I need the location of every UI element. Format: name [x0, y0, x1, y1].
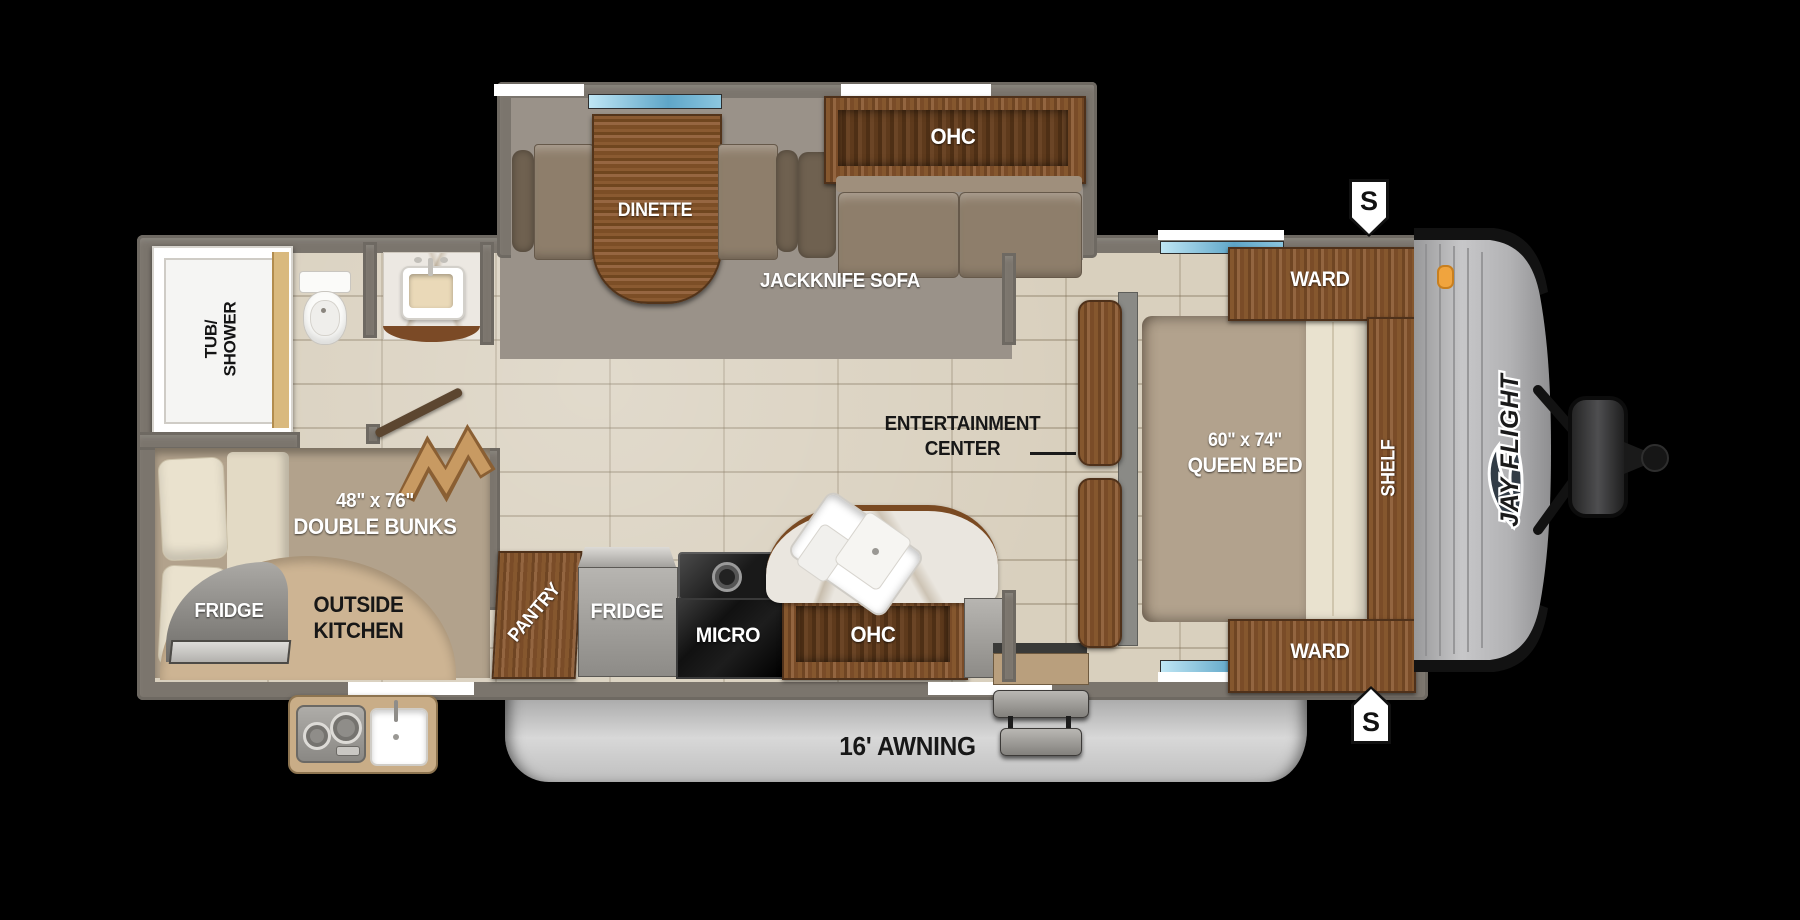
- front-cap: JAY FLIGHT: [1412, 200, 1672, 700]
- slideout-window-left: [494, 84, 584, 96]
- toilet-tank: [299, 271, 351, 293]
- outside-kitchen-line2: KITCHEN: [300, 618, 418, 644]
- entertainment-line2: CENTER: [857, 437, 1069, 462]
- bedroom-window-top-frame: [1158, 230, 1284, 240]
- entertainment-line1: ENTERTAINMENT: [857, 412, 1069, 437]
- dinette-label: DINETTE: [596, 200, 714, 222]
- dinette-window-glass: [588, 94, 722, 109]
- exterior-stove-burner-right: [330, 712, 362, 744]
- marker-light: [1438, 266, 1453, 288]
- fridge-top-bevel: [578, 547, 676, 567]
- dinette-armrest-right: [776, 150, 798, 252]
- outside-kitchen-line1: OUTSIDE: [300, 592, 418, 618]
- sofa-cushion-right: [959, 192, 1082, 278]
- awning-label: 16' AWNING: [825, 731, 990, 762]
- entry-step-2: [1000, 728, 1082, 756]
- tub-shower-line2: SHOWER: [220, 302, 239, 377]
- speaker-marker-top: S: [1349, 179, 1389, 237]
- cooktop-burner: [712, 562, 742, 592]
- shelf-label-wrap: SHELF: [1367, 317, 1412, 619]
- toilet-flush-dot: [321, 308, 326, 313]
- exterior-sink: [370, 708, 428, 766]
- sofa-cushion-left: [838, 192, 959, 278]
- entertainment-cabinet-lower: [1078, 478, 1122, 648]
- queen-bed-pillow-crease: [1332, 322, 1334, 616]
- entertainment-cabinet-upper: [1078, 300, 1122, 466]
- faucet-icon: [428, 258, 433, 276]
- double-bunks-name: DOUBLE BUNKS: [267, 514, 483, 540]
- exterior-sink-faucet: [394, 700, 398, 722]
- slideout-window-right: [841, 84, 991, 96]
- ward-top-label: WARD: [1234, 268, 1407, 292]
- double-bunks-size: 48" x 76": [267, 488, 483, 514]
- queen-bed-name: QUEEN BED: [1160, 453, 1329, 478]
- kitchen-sink-drain: [872, 548, 879, 555]
- propane-tank: [1570, 398, 1626, 516]
- queen-bed-label: 60" x 74" QUEEN BED: [1160, 428, 1329, 478]
- queen-bed-size: 60" x 74": [1160, 428, 1329, 453]
- hitch-ball: [1642, 445, 1668, 471]
- speaker-bottom-letter: S: [1351, 702, 1391, 742]
- dinette-armrest-left: [512, 150, 534, 252]
- floorplan-canvas: 16' AWNING DINETTE OHC JACKKNIFE SOFA TU…: [0, 0, 1800, 920]
- vanity-wall-left: [363, 242, 377, 338]
- entertainment-pointer-line: [1030, 452, 1076, 455]
- shelf-label: SHELF: [1379, 439, 1401, 496]
- exterior-kitchen-door-opening: [348, 682, 474, 695]
- tub-shower-label: TUB/ SHOWER: [152, 246, 289, 432]
- entry-step-1: [993, 690, 1089, 718]
- bathroom-sink-basin: [409, 274, 453, 308]
- double-bunks-label: 48" x 76" DOUBLE BUNKS: [267, 488, 483, 540]
- bedroom-wall-stub-top: [1002, 253, 1016, 345]
- ward-bottom-label: WARD: [1234, 640, 1407, 664]
- tub-shower-line1: TUB/: [201, 302, 220, 377]
- dinette-bench-left: [534, 144, 594, 260]
- toilet-seat: [310, 300, 340, 336]
- sofa-back: [836, 176, 1082, 192]
- faucet-handle-right: [440, 257, 448, 263]
- outside-fridge-drawer: [169, 640, 292, 664]
- dinette-bench-right: [718, 144, 778, 260]
- faucet-handle-left: [414, 257, 422, 263]
- exterior-stove-burner-left: [303, 722, 331, 750]
- speaker-top-letter: S: [1349, 181, 1389, 221]
- microwave-label: MICRO: [679, 624, 777, 648]
- exterior-sink-drain: [393, 734, 399, 740]
- fridge-main-label: FRIDGE: [581, 600, 673, 624]
- bunk-pillow-top: [157, 456, 228, 561]
- jackknife-sofa-label: JACKKNIFE SOFA: [708, 270, 971, 293]
- bedroom-wall-stub-bottom: [1002, 590, 1016, 682]
- exterior-stove-controls: [336, 746, 360, 756]
- brand-logo: JAY FLIGHT: [1496, 372, 1524, 527]
- vanity-wall-right: [480, 242, 494, 345]
- outside-kitchen-label: OUTSIDE KITCHEN: [300, 592, 418, 644]
- ohc-bottom-label: OHC: [787, 622, 958, 648]
- ohc-top-label: OHC: [832, 124, 1075, 150]
- outside-fridge-label: FRIDGE: [174, 600, 285, 623]
